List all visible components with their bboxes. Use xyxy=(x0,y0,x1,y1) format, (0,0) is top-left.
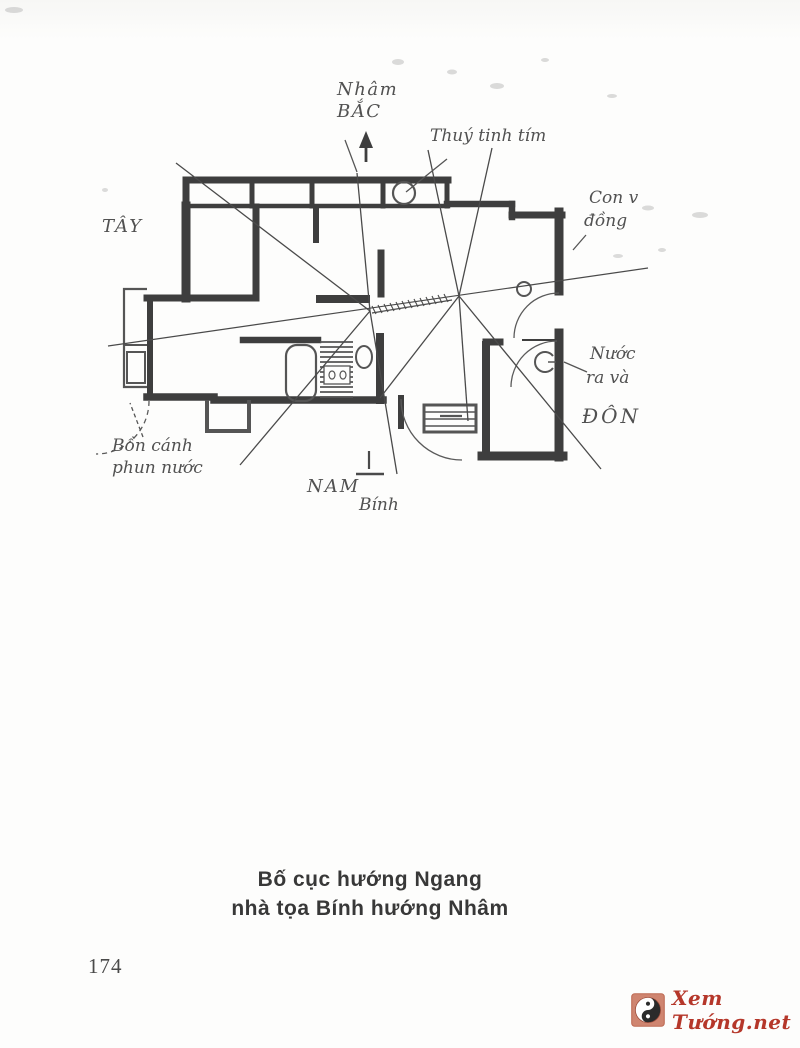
leader-crystal xyxy=(406,159,447,192)
label-bon-canh: Bồn cánh xyxy=(112,437,193,457)
leader-fountain xyxy=(130,403,143,437)
label-nuoc: Nước xyxy=(590,345,636,365)
door-knob xyxy=(517,282,531,296)
north-arrow-icon xyxy=(359,131,373,162)
walls xyxy=(147,180,563,457)
figure-caption: Bố cục hướng Ngang nhà tọa Bính hướng Nh… xyxy=(170,866,570,924)
south-marker-icon xyxy=(356,451,384,474)
label-ra-va: ra và xyxy=(586,369,629,389)
toilet xyxy=(356,346,372,368)
label-dong-object: đồng xyxy=(584,212,627,232)
page-number: 174 xyxy=(88,954,123,979)
crystal-ball xyxy=(393,182,415,204)
label-phun-nuoc: phun nước xyxy=(112,459,203,479)
label-tay: TÂY xyxy=(102,217,143,238)
label-thuy-tinh-tim: Thuý tinh tím xyxy=(430,127,546,147)
watermark-logo: Xem Tướng.net xyxy=(631,986,800,1034)
yin-yang-icon xyxy=(631,987,665,1033)
leader-water xyxy=(564,362,587,372)
drain-symbol xyxy=(535,352,556,372)
label-binh: Bính xyxy=(359,496,399,516)
label-con-v: Con v xyxy=(589,189,638,209)
caption-line-2: nhà tọa Bính hướng Nhâm xyxy=(170,895,570,924)
label-bac: BẮC xyxy=(337,102,382,123)
caption-line-1: Bố cục hướng Ngang xyxy=(170,866,570,895)
watermark-text: Xem Tướng.net xyxy=(672,986,800,1034)
porch xyxy=(207,400,249,431)
label-dong-east: ĐÔN xyxy=(582,405,641,428)
leader-right-object xyxy=(573,235,586,250)
scanned-book-page: Nhâm BẮC Thuý tinh tím TÂY Con v đồng Nư… xyxy=(0,0,800,1048)
balcony-bay xyxy=(124,289,147,387)
label-nam: NAM xyxy=(307,477,360,498)
leader-north xyxy=(345,140,357,172)
label-nham: Nhâm xyxy=(337,80,398,101)
